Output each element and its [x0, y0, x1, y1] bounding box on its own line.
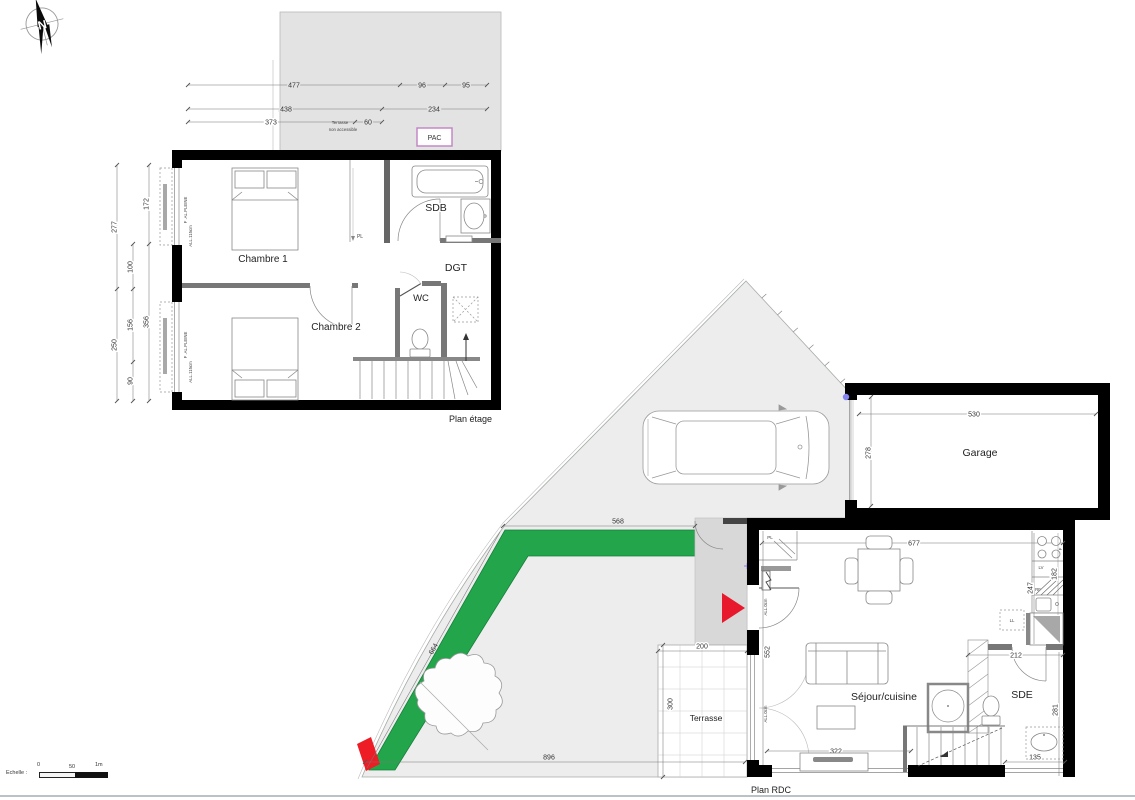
dim-135: 135: [1029, 755, 1041, 762]
door-sill-label: ALL.0cm: [763, 598, 768, 615]
dim-212: 212: [1010, 653, 1022, 660]
bay-window-sill-label: ALL.0cm: [763, 705, 768, 722]
room-label-chambre1: Chambre 1: [238, 254, 288, 265]
washbasin-sdb: [461, 199, 490, 233]
terrace: 200 300 Terrasse: [656, 643, 749, 779]
dim-277: 277: [112, 221, 119, 233]
dim-100: 100: [128, 261, 135, 273]
dim-250: 250: [112, 339, 119, 351]
dim-281: 281: [1053, 704, 1060, 716]
coffee-table: [817, 706, 855, 729]
upper-left-dimensions: 277 250 100 156 90 172 356: [112, 163, 152, 403]
dishwasher-label: LV: [1039, 565, 1044, 570]
washing-machine: LL: [1000, 610, 1024, 630]
scale-bar-dark-segment: [75, 772, 108, 778]
dim-182: 182: [1052, 568, 1059, 580]
scale-tick-0: 0: [37, 762, 40, 768]
dim-356: 356: [144, 316, 151, 328]
scale-label: Echelle :: [6, 770, 27, 776]
window-type-label: F .AL.PLEINE: [183, 331, 188, 358]
porch-wall-stub: [723, 518, 747, 524]
toilet-sde: [982, 696, 1000, 725]
window-chambre2: F .AL.PLEINE ALL.115cm: [160, 302, 193, 392]
room-label-sdb: SDB: [425, 202, 447, 214]
room-label-terrasse: Terrasse: [690, 713, 723, 723]
window-sill-label: ALL.115cm: [188, 225, 193, 247]
entry-porch: [695, 518, 747, 645]
dim-90: 90: [128, 377, 135, 385]
car: [643, 405, 829, 490]
dim-896: 896: [543, 755, 555, 762]
ground-plan-title: Plan RDC: [751, 785, 792, 795]
washing-machine-label: LL: [1010, 618, 1015, 623]
kitchen: F LV RF 247 182: [1026, 531, 1063, 645]
dim-438: 438: [280, 107, 292, 114]
dim-300: 300: [668, 698, 675, 710]
dim-96: 96: [418, 83, 426, 90]
dim-60: 60: [364, 120, 372, 127]
roof-terrace-area: [280, 12, 501, 151]
scale-bar-light-segment: [39, 772, 77, 778]
ground-floor-plan: 530 278 Garage 200 300 Terrasse 568 664: [340, 260, 1135, 800]
pac-unit: PAC: [417, 128, 452, 146]
dim-172: 172: [144, 198, 151, 210]
room-label-sde: SDE: [1011, 689, 1033, 701]
room-label-garage: Garage: [962, 447, 997, 459]
dim-568: 568: [612, 519, 624, 526]
dim-156: 156: [128, 319, 135, 331]
fridge-label: RF: [1035, 587, 1041, 592]
dim-530: 530: [968, 412, 980, 419]
towel-radiator: [446, 236, 472, 242]
scale-tick-1m: 1m: [95, 762, 103, 768]
window-sill-label: ALL.115cm: [188, 361, 193, 383]
room-label-pl: PL: [357, 234, 363, 240]
utility-marker-dot: [843, 394, 849, 400]
floor-plan-sheet: N 477 96 95 438 234 373 60 Terrasse non …: [0, 0, 1135, 800]
dining-set: [845, 536, 913, 604]
electrical-panel: [761, 566, 791, 590]
roof-terrace-note-1: Terrasse: [332, 120, 349, 125]
house-walls: [747, 518, 1075, 777]
shower: [928, 684, 968, 732]
dim-278: 278: [866, 447, 873, 459]
dim-477: 477: [288, 83, 300, 90]
dim-677: 677: [908, 541, 920, 548]
dim-247: 247: [1028, 582, 1035, 594]
dim-95: 95: [462, 83, 470, 90]
dim-373: 373: [265, 120, 277, 127]
bed-chambre2: [232, 318, 298, 400]
scale-tick-50: 50: [69, 764, 75, 770]
sofa: [806, 643, 888, 684]
dim-234: 234: [428, 107, 440, 114]
bathtub: [412, 166, 488, 197]
oven-label: F: [1058, 547, 1063, 550]
room-label-sejour: Séjour/cuisine: [851, 691, 917, 703]
pac-label: PAC: [428, 135, 442, 142]
entry-closet: PL: [759, 531, 797, 560]
tv-bench: [800, 753, 868, 771]
sheet-bottom-rule: [0, 795, 1135, 797]
window-chambre1: F .AL.PLEINE ALL.115cm: [160, 168, 193, 247]
room-label-pl-ground: PL: [767, 535, 773, 540]
dim-200: 200: [696, 644, 708, 651]
roof-terrace-note-2: non accessible: [329, 127, 358, 132]
window-type-label: F .AL.PLEINE: [183, 196, 188, 223]
bed-chambre1: [232, 168, 298, 250]
dim-552: 552: [765, 646, 772, 658]
